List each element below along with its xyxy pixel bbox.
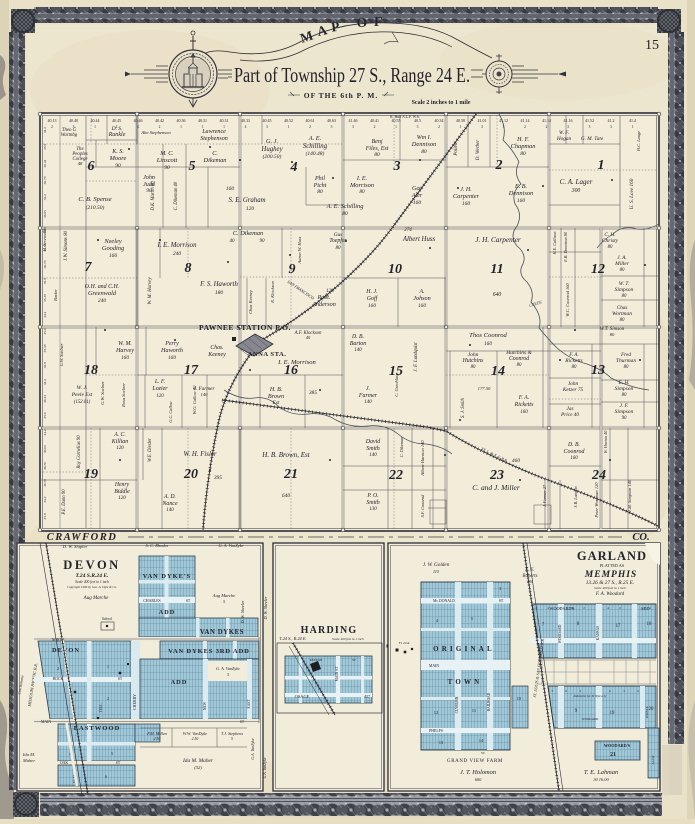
svg-text:Thos Coonrod: Thos Coonrod xyxy=(469,332,507,339)
svg-text:Pollett: Pollett xyxy=(454,142,459,157)
svg-text:Gooding: Gooding xyxy=(102,245,124,252)
svg-text:21: 21 xyxy=(610,752,616,758)
svg-text:40.40: 40.40 xyxy=(69,118,78,123)
svg-text:2: 2 xyxy=(374,125,376,129)
svg-text:3: 3 xyxy=(331,125,333,129)
svg-text:40: 40 xyxy=(229,237,235,244)
svg-text:TOWN: TOWN xyxy=(448,678,483,686)
svg-text:80: 80 xyxy=(374,152,380,158)
svg-text:H. J.: H. J. xyxy=(365,289,377,295)
svg-text:12: 12 xyxy=(434,710,439,715)
svg-text:2: 2 xyxy=(495,158,503,173)
svg-text:6: 6 xyxy=(88,159,95,174)
svg-text:3: 3 xyxy=(393,159,401,174)
svg-text:D. W. Sheeler: D. W. Sheeler xyxy=(240,600,245,624)
svg-text:E.B. Dennison 80: E.B. Dennison 80 xyxy=(563,231,568,263)
svg-text:Scale 400 feet to 1 inch: Scale 400 feet to 1 inch xyxy=(75,580,109,584)
svg-text:3: 3 xyxy=(503,125,505,129)
svg-text:ADD: ADD xyxy=(640,606,649,611)
svg-text:Henry: Henry xyxy=(114,482,130,488)
svg-text:17: 17 xyxy=(616,624,621,629)
svg-text:MAIN: MAIN xyxy=(429,664,439,668)
svg-text:W.G. Callow 40: W.G. Callow 40 xyxy=(192,385,197,414)
svg-text:EAST: EAST xyxy=(247,699,251,709)
svg-text:L. F.: L. F. xyxy=(154,379,165,385)
svg-text:457: 457 xyxy=(364,694,371,699)
svg-text:Peter Wortman 120: Peter Wortman 120 xyxy=(594,482,599,519)
svg-text:240: 240 xyxy=(173,250,182,257)
svg-text:160: 160 xyxy=(520,409,528,415)
svg-text:O: O xyxy=(356,15,367,30)
svg-text:Greenwald: Greenwald xyxy=(88,290,117,297)
svg-text:160: 160 xyxy=(121,355,129,361)
svg-text:30 16.00: 30 16.00 xyxy=(593,777,609,782)
svg-text:H. B.: H. B. xyxy=(269,387,282,393)
svg-text:W. J.: W. J. xyxy=(77,385,88,391)
svg-text:35.9: 35.9 xyxy=(43,278,47,284)
svg-text:Dikeman: Dikeman xyxy=(202,157,226,164)
svg-text:F. A. Woodard: F. A. Woodard xyxy=(595,592,625,597)
svg-text:41.4: 41.4 xyxy=(629,118,636,123)
svg-text:15: 15 xyxy=(645,38,659,53)
svg-text:Ricketts: Ricketts xyxy=(514,402,534,408)
svg-text:5: 5 xyxy=(231,737,233,741)
svg-text:160: 160 xyxy=(168,355,176,361)
svg-text:Mc.DONALD: Mc.DONALD xyxy=(433,599,455,603)
svg-text:640: 640 xyxy=(493,291,502,298)
svg-text:ROCK: ROCK xyxy=(53,677,64,681)
svg-text:19: 19 xyxy=(610,711,615,716)
svg-text:13: 13 xyxy=(591,363,605,378)
svg-text:Stephenson: Stephenson xyxy=(200,136,228,142)
svg-text:120: 120 xyxy=(156,393,164,399)
svg-text:D. W. Sheeler: D. W. Sheeler xyxy=(263,596,268,620)
svg-text:80: 80 xyxy=(624,365,629,370)
svg-text:C. Dikeman: C. Dikeman xyxy=(233,230,263,237)
svg-text:Hughey: Hughey xyxy=(260,146,283,153)
svg-text:460: 460 xyxy=(512,458,520,464)
svg-text:W.W. VanDyke: W.W. VanDyke xyxy=(183,731,207,736)
svg-text:160: 160 xyxy=(484,341,492,347)
svg-text:80: 80 xyxy=(620,268,625,273)
svg-text:1: 1 xyxy=(632,125,634,129)
svg-text:G.W. Soelner: G.W. Soelner xyxy=(59,343,64,366)
svg-text:P.E. Dunn 90: P.E. Dunn 90 xyxy=(62,489,67,516)
svg-text:300: 300 xyxy=(571,188,581,194)
svg-text:160: 160 xyxy=(226,186,235,192)
svg-text:W.C. Coonrod 160: W.C. Coonrod 160 xyxy=(565,282,570,316)
svg-text:J.W. Simons 80: J.W. Simons 80 xyxy=(64,230,69,261)
svg-text:180: 180 xyxy=(215,290,224,296)
svg-text:D. W. Shipler: D. W. Shipler xyxy=(62,544,88,549)
svg-text:160: 160 xyxy=(368,303,376,309)
svg-text:120: 120 xyxy=(116,445,124,451)
svg-text:40.52: 40.52 xyxy=(284,118,293,123)
svg-text:35.9: 35.9 xyxy=(43,412,47,418)
svg-text:F: F xyxy=(374,14,383,29)
svg-text:OF THE 6th P. M.: OF THE 6th P. M. xyxy=(304,91,378,100)
svg-text:1: 1 xyxy=(94,125,96,129)
svg-text:R. Hull A.L.P. W.S.: R. Hull A.L.P. W.S. xyxy=(390,115,420,119)
svg-text:34.2: 34.2 xyxy=(43,311,47,317)
svg-text:J. H. Carpenter: J. H. Carpenter xyxy=(475,236,521,244)
svg-text:14: 14 xyxy=(491,364,505,379)
svg-text:W. H. Fisler: W. H. Fisler xyxy=(183,451,216,458)
svg-text:I. E. Morrison: I. E. Morrison xyxy=(277,359,316,366)
svg-text:W. Horton 40: W. Horton 40 xyxy=(603,430,608,454)
svg-text:PLATTED AS: PLATTED AS xyxy=(600,563,625,568)
svg-text:H. B. Brown, Est: H. B. Brown, Est xyxy=(261,451,310,459)
svg-text:36.65: 36.65 xyxy=(43,210,47,218)
svg-text:Ida M. Maher: Ida M. Maher xyxy=(182,758,214,764)
svg-text:24: 24 xyxy=(591,468,606,483)
svg-text:Robt.: Robt. xyxy=(317,295,331,301)
svg-text:2.50: 2.50 xyxy=(192,737,199,741)
svg-text:4: 4 xyxy=(245,125,247,129)
svg-text:ADD: ADD xyxy=(171,679,188,686)
svg-text:Simpson: Simpson xyxy=(615,409,634,415)
svg-text:21: 21 xyxy=(283,467,298,482)
svg-text:160: 160 xyxy=(462,201,471,207)
svg-text:36.41: 36.41 xyxy=(43,159,47,167)
svg-text:Scale 400 feet to 1 inch: Scale 400 feet to 1 inch xyxy=(594,586,626,590)
svg-text:11: 11 xyxy=(472,708,477,713)
svg-text:35.38: 35.38 xyxy=(43,344,47,352)
svg-text:Lawrence: Lawrence xyxy=(201,129,226,135)
svg-text:G.A. VanZyke: G.A. VanZyke xyxy=(263,757,267,778)
svg-text:140: 140 xyxy=(201,392,209,397)
svg-text:Chas Keeney: Chas Keeney xyxy=(248,290,253,314)
svg-text:Perry: Perry xyxy=(164,341,179,347)
svg-text:MAIN: MAIN xyxy=(41,720,51,724)
svg-text:41.01: 41.01 xyxy=(478,118,487,123)
svg-text:Dennison: Dennison xyxy=(411,141,436,148)
svg-text:40.41: 40.41 xyxy=(370,118,379,123)
svg-text:1: 1 xyxy=(598,158,605,173)
svg-text:G. A. VanZyke: G. A. VanZyke xyxy=(218,543,243,548)
svg-text:F. A.: F. A. xyxy=(518,395,529,401)
svg-text:1: 1 xyxy=(288,125,290,129)
svg-text:3: 3 xyxy=(266,125,268,129)
svg-text:3: 3 xyxy=(481,125,483,129)
svg-text:G.A. VanZyke: G.A. VanZyke xyxy=(251,738,255,760)
svg-text:80: 80 xyxy=(520,151,526,157)
svg-text:S. J. Smith: S. J. Smith xyxy=(461,397,466,418)
svg-text:Harvey: Harvey xyxy=(115,348,134,354)
svg-text:ALLW: ALLW xyxy=(651,756,655,765)
svg-text:115: 115 xyxy=(433,569,440,574)
svg-text:9: 9 xyxy=(289,262,296,277)
svg-text:160: 160 xyxy=(570,455,578,461)
svg-text:S. E. Graham: S. E. Graham xyxy=(228,197,265,204)
svg-text:40.13: 40.13 xyxy=(48,118,57,123)
svg-text:C. Dikeman 40: C. Dikeman 40 xyxy=(174,181,179,210)
svg-text:120: 120 xyxy=(246,206,255,212)
svg-text:80: 80 xyxy=(622,294,627,299)
svg-text:5: 5 xyxy=(111,751,113,756)
svg-text:J.M. Simpson 140: J.M. Simpson 140 xyxy=(627,479,632,512)
svg-text:MAIN ST: MAIN ST xyxy=(335,666,339,681)
svg-text:41.16: 41.16 xyxy=(564,118,573,123)
svg-text:130: 130 xyxy=(369,506,377,512)
svg-text:A. D.: A. D. xyxy=(163,494,176,500)
svg-text:36.70: 36.70 xyxy=(43,260,47,268)
svg-text:19: 19 xyxy=(84,467,98,482)
svg-text:PHELPS: PHELPS xyxy=(429,729,443,733)
svg-text:G. J.: G. J. xyxy=(266,138,279,145)
svg-text:C. Dikeman: C. Dikeman xyxy=(399,437,404,458)
svg-text:177.50: 177.50 xyxy=(478,386,491,391)
svg-text:CHERRY: CHERRY xyxy=(132,694,137,710)
svg-text:34.2: 34.2 xyxy=(43,496,47,502)
svg-text:41.46: 41.46 xyxy=(349,118,358,123)
svg-text:Copyright 1906 by Geo. A. Ogle: Copyright 1906 by Geo. A. Ogle & Co. xyxy=(67,585,117,589)
svg-text:H. Sevens 80: H. Sevens 80 xyxy=(42,228,47,252)
svg-text:Simpson: Simpson xyxy=(615,386,634,392)
svg-text:40.45: 40.45 xyxy=(112,118,121,123)
svg-text:90: 90 xyxy=(164,165,170,171)
svg-text:2: 2 xyxy=(159,125,161,129)
svg-text:T.24 S.R.24 E.: T.24 S.R.24 E. xyxy=(75,573,108,579)
svg-text:Rosa Soelner: Rosa Soelner xyxy=(121,383,126,408)
svg-text:7: 7 xyxy=(85,260,93,275)
svg-text:(52): (52) xyxy=(194,765,202,770)
svg-text:80: 80 xyxy=(517,363,522,368)
svg-text:C. B. Spense: C. B. Spense xyxy=(78,196,111,203)
svg-text:Roy Cornelius 90: Roy Cornelius 90 xyxy=(77,435,82,470)
svg-text:WOODARD: WOODARD xyxy=(558,624,562,643)
svg-text:20: 20 xyxy=(183,467,198,482)
svg-text:Peele Est: Peele Est xyxy=(71,392,93,398)
svg-text:160: 160 xyxy=(109,253,118,259)
svg-text:G. M. Tate: G. M. Tate xyxy=(581,136,604,142)
svg-text:Scale 2 inches to 1 mile: Scale 2 inches to 1 mile xyxy=(412,100,471,106)
svg-text:140: 140 xyxy=(369,451,377,458)
svg-text:2: 2 xyxy=(309,125,311,129)
svg-text:120: 120 xyxy=(326,288,334,294)
svg-text:17: 17 xyxy=(184,363,199,378)
svg-text:DWALL: DWALL xyxy=(645,706,649,718)
svg-text:40.42: 40.42 xyxy=(155,118,164,123)
svg-text:Hogan: Hogan xyxy=(556,136,572,142)
svg-text:Goff: Goff xyxy=(367,295,379,302)
svg-text:40.34: 40.34 xyxy=(435,118,444,123)
svg-text:MEMPHIS: MEMPHIS xyxy=(584,570,637,580)
svg-text:Christy: Christy xyxy=(602,238,619,244)
svg-text:240: 240 xyxy=(98,297,107,304)
svg-text:D. B.: D. B. xyxy=(351,334,364,340)
svg-text:120: 120 xyxy=(118,495,126,501)
svg-text:(210.50): (210.50) xyxy=(86,204,105,211)
svg-text:23: 23 xyxy=(489,468,504,483)
svg-text:80: 80 xyxy=(572,365,577,370)
svg-text:U. S. Love 160: U. S. Love 160 xyxy=(629,178,635,209)
svg-text:1: 1 xyxy=(395,125,397,129)
svg-text:G.C. Callow: G.C. Callow xyxy=(168,401,173,422)
svg-text:KANSAS: KANSAS xyxy=(596,626,600,640)
svg-text:18: 18 xyxy=(84,363,98,378)
svg-text:Est: Est xyxy=(272,400,280,406)
svg-text:CLYBURN: CLYBURN xyxy=(455,696,459,713)
svg-text:22: 22 xyxy=(388,468,403,483)
svg-text:40.31: 40.31 xyxy=(220,118,229,123)
svg-text:J. T. Holomon: J. T. Holomon xyxy=(460,769,496,776)
svg-text:Linscott: Linscott xyxy=(156,157,178,164)
svg-text:J.: J. xyxy=(366,386,370,392)
svg-text:14: 14 xyxy=(479,738,484,743)
svg-text:3: 3 xyxy=(567,125,569,129)
svg-text:Maher: Maher xyxy=(22,758,35,763)
svg-text:3: 3 xyxy=(610,125,612,129)
svg-text:Phil: Phil xyxy=(314,176,325,182)
svg-text:80: 80 xyxy=(342,211,348,217)
svg-text:36.70: 36.70 xyxy=(43,462,47,470)
svg-text:35.9: 35.9 xyxy=(43,362,47,368)
svg-text:ANNA STA.: ANNA STA. xyxy=(248,351,287,358)
svg-text:35.9: 35.9 xyxy=(43,513,47,519)
svg-text:I. E. Morrison: I. E. Morrison xyxy=(157,242,198,249)
svg-text:ORIGINAL: ORIGINAL xyxy=(433,645,495,653)
svg-text:3: 3 xyxy=(352,125,354,129)
svg-text:Dennison: Dennison xyxy=(508,190,533,197)
svg-text:80: 80 xyxy=(317,189,323,195)
svg-text:34.2: 34.2 xyxy=(43,429,47,435)
svg-text:A.: A. xyxy=(418,289,424,295)
svg-text:40.44: 40.44 xyxy=(91,118,100,123)
svg-text:Haworth: Haworth xyxy=(160,348,183,354)
svg-text:WOODARD: WOODARD xyxy=(582,717,599,721)
svg-text:P. O.: P. O. xyxy=(366,493,378,499)
svg-text:80: 80 xyxy=(359,189,365,195)
svg-text:40.46: 40.46 xyxy=(134,118,143,123)
svg-text:Benj: Benj xyxy=(371,139,382,145)
svg-text:ST: ST xyxy=(499,599,504,603)
svg-text:40.58: 40.58 xyxy=(456,118,465,123)
svg-text:ADD: ADD xyxy=(159,609,175,616)
svg-text:S. C. Rhodes: S. C. Rhodes xyxy=(146,543,169,548)
svg-text:VAN DYKES: VAN DYKES xyxy=(200,629,244,636)
svg-text:Coonrod: Coonrod xyxy=(509,356,529,362)
svg-text:C. A. Lager: C. A. Lager xyxy=(560,178,593,186)
svg-text:DEVON: DEVON xyxy=(63,558,120,572)
svg-text:Schilling: Schilling xyxy=(303,143,328,150)
svg-text:RAILROAD: RAILROAD xyxy=(487,692,491,711)
svg-text:GARLAND: GARLAND xyxy=(577,549,647,563)
svg-text:4: 4 xyxy=(137,125,139,129)
svg-text:80: 80 xyxy=(421,149,427,155)
svg-text:John: John xyxy=(143,175,155,181)
svg-text:D.K. Martin 80: D.K. Martin 80 xyxy=(151,181,156,212)
svg-text:A. C.: A. C. xyxy=(113,432,126,438)
svg-text:160: 160 xyxy=(517,198,526,204)
svg-text:20: 20 xyxy=(649,707,654,712)
svg-text:11: 11 xyxy=(490,262,503,277)
svg-text:Albert Huss: Albert Huss xyxy=(402,236,436,243)
svg-text:OSAGE: OSAGE xyxy=(295,694,310,699)
svg-text:41.2: 41.2 xyxy=(608,118,615,123)
svg-text:W. M.: W. M. xyxy=(118,341,132,347)
svg-text:80: 80 xyxy=(608,245,613,250)
svg-text:40.33: 40.33 xyxy=(241,118,250,123)
svg-text:F. S. Haworth: F. S. Haworth xyxy=(199,281,238,288)
svg-text:Wortman: Wortman xyxy=(612,311,632,317)
svg-text:40.31: 40.31 xyxy=(198,118,207,123)
svg-text:18: 18 xyxy=(647,622,652,627)
svg-text:Geo: Geo xyxy=(412,186,422,192)
svg-text:Aug Marche: Aug Marche xyxy=(83,596,109,601)
svg-text:Wartnbg: Wartnbg xyxy=(61,133,78,138)
svg-text:Hutchins: Hutchins xyxy=(462,358,484,364)
svg-text:34.2: 34.2 xyxy=(43,194,47,200)
svg-text:J. F. Lundquist: J. F. Lundquist xyxy=(414,342,419,372)
svg-text:Ft. Link: Ft. Link xyxy=(398,641,410,645)
svg-text:140: 140 xyxy=(364,398,372,405)
svg-text:Keeney: Keeney xyxy=(207,352,226,358)
svg-text:F.M. Millen: F.M. Millen xyxy=(146,731,167,736)
svg-text:C. Grechling: C. Grechling xyxy=(394,373,399,397)
svg-text:David: David xyxy=(365,439,381,445)
svg-text:40.36: 40.36 xyxy=(177,118,186,123)
svg-text:160: 160 xyxy=(413,200,422,206)
svg-text:3: 3 xyxy=(499,586,501,591)
svg-text:Ida M.: Ida M. xyxy=(22,752,35,757)
svg-text:Runkle: Runkle xyxy=(108,132,126,138)
svg-text:W. M. Harvey: W. M. Harvey xyxy=(148,277,153,305)
svg-text:40.63: 40.63 xyxy=(327,118,336,123)
svg-text:Thurman: Thurman xyxy=(616,358,636,364)
svg-text:(152.01): (152.01) xyxy=(74,400,91,405)
svg-text:VAN DYKE'S: VAN DYKE'S xyxy=(143,573,191,580)
svg-text:2: 2 xyxy=(546,125,548,129)
svg-text:2: 2 xyxy=(107,696,109,701)
svg-text:140: 140 xyxy=(354,346,362,353)
svg-text:2: 2 xyxy=(57,666,59,671)
svg-text:Albert Harmon 140: Albert Harmon 140 xyxy=(420,440,425,477)
svg-text:Johson: Johson xyxy=(413,296,430,302)
svg-text:Morrison: Morrison xyxy=(349,182,374,189)
svg-text:35.38: 35.38 xyxy=(43,294,47,302)
svg-text:90: 90 xyxy=(622,416,627,421)
svg-text:90: 90 xyxy=(259,238,265,244)
svg-text:12: 12 xyxy=(591,262,605,277)
svg-text:Aaron W. Huss: Aaron W. Huss xyxy=(297,236,302,264)
svg-text:80: 80 xyxy=(622,393,627,398)
svg-text:A. E.: A. E. xyxy=(308,135,322,142)
svg-text:41.52: 41.52 xyxy=(585,118,594,123)
svg-text:600: 600 xyxy=(475,777,482,782)
svg-text:34.2: 34.2 xyxy=(43,127,47,133)
svg-text:Neeley: Neeley xyxy=(103,238,122,245)
svg-text:R. Klockson: R. Klockson xyxy=(270,280,275,304)
svg-text:2.50: 2.50 xyxy=(154,737,161,741)
svg-text:ST: ST xyxy=(116,761,121,765)
svg-text:41.12: 41.12 xyxy=(499,118,508,123)
svg-text:(140.48): (140.48) xyxy=(306,150,325,157)
svg-text:PATTON: PATTON xyxy=(310,658,323,662)
svg-text:1: 1 xyxy=(180,125,182,129)
svg-text:Ricketts: Ricketts xyxy=(564,358,582,364)
svg-text:40.61: 40.61 xyxy=(306,118,315,123)
svg-text:H.E. Cullison: H.E. Cullison xyxy=(552,231,557,255)
svg-text:36.70: 36.70 xyxy=(43,176,47,184)
svg-text:HARDING: HARDING xyxy=(301,625,358,636)
svg-text:90: 90 xyxy=(115,163,121,169)
svg-text:J. Farmer 27: J. Farmer 27 xyxy=(542,484,547,507)
svg-text:S.B. Lamson: S.B. Lamson xyxy=(573,486,578,507)
svg-text:GRAND VIEW FARM: GRAND VIEW FARM xyxy=(447,759,503,764)
svg-text:(200.50): (200.50) xyxy=(263,153,282,160)
svg-text:Industria lye St Wye a ly: Industria lye St Wye a ly xyxy=(573,694,607,698)
